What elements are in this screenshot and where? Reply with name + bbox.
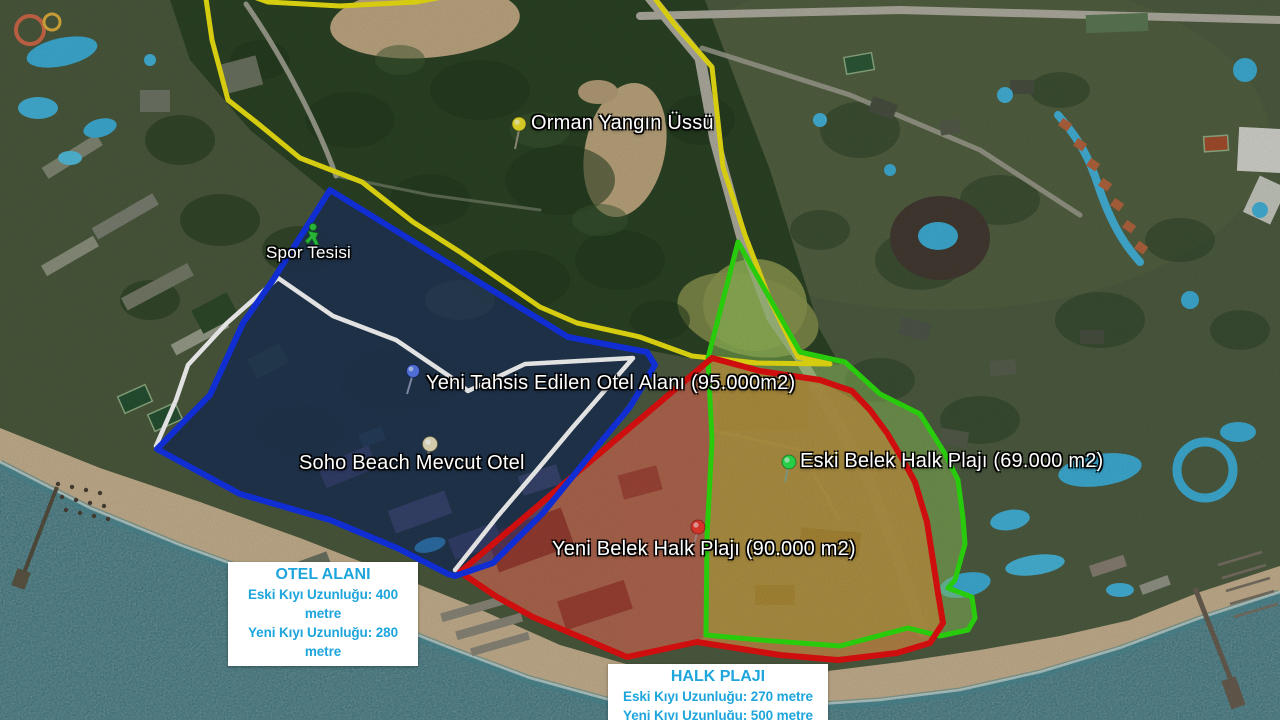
- halk-eski-kiyi: Eski Kıyı Uzunluğu: 270 metre: [614, 687, 822, 706]
- halk-plaji-info-box: HALK PLAJI Eski Kıyı Uzunluğu: 270 metre…: [608, 664, 828, 720]
- label-spor-tesisi: Spor Tesisi: [266, 243, 351, 263]
- otel-eski-kiyi: Eski Kıyı Uzunluğu: 400 metre: [234, 585, 412, 623]
- halk-yeni-kiyi: Yeni Kıyı Uzunluğu: 500 metre: [614, 706, 822, 720]
- satellite-grain: [0, 0, 1280, 720]
- otel-alani-title: OTEL ALANI: [234, 565, 412, 585]
- label-soho-beach-mevcut-otel: Soho Beach Mevcut Otel: [299, 452, 525, 475]
- label-yeni-tahsis-otel-alani: Yeni Tahsis Edilen Otel Alanı (95.000m2): [426, 372, 795, 395]
- label-eski-belek-halk-plaji: Eski Belek Halk Plajı (69.000 m2): [800, 450, 1103, 473]
- label-orman-yangin-ussu: Orman Yangın Üssü: [531, 112, 714, 135]
- otel-alani-info-box: OTEL ALANI Eski Kıyı Uzunluğu: 400 metre…: [228, 562, 418, 666]
- map-viewport[interactable]: Orman Yangın Üssü Spor Tesisi Yeni Tahsi…: [0, 0, 1280, 720]
- satellite-map[interactable]: [0, 0, 1280, 720]
- otel-yeni-kiyi: Yeni Kıyı Uzunluğu: 280 metre: [234, 623, 412, 661]
- halk-plaji-title: HALK PLAJI: [614, 667, 822, 687]
- label-yeni-belek-halk-plaji: Yeni Belek Halk Plajı (90.000 m2): [552, 538, 856, 561]
